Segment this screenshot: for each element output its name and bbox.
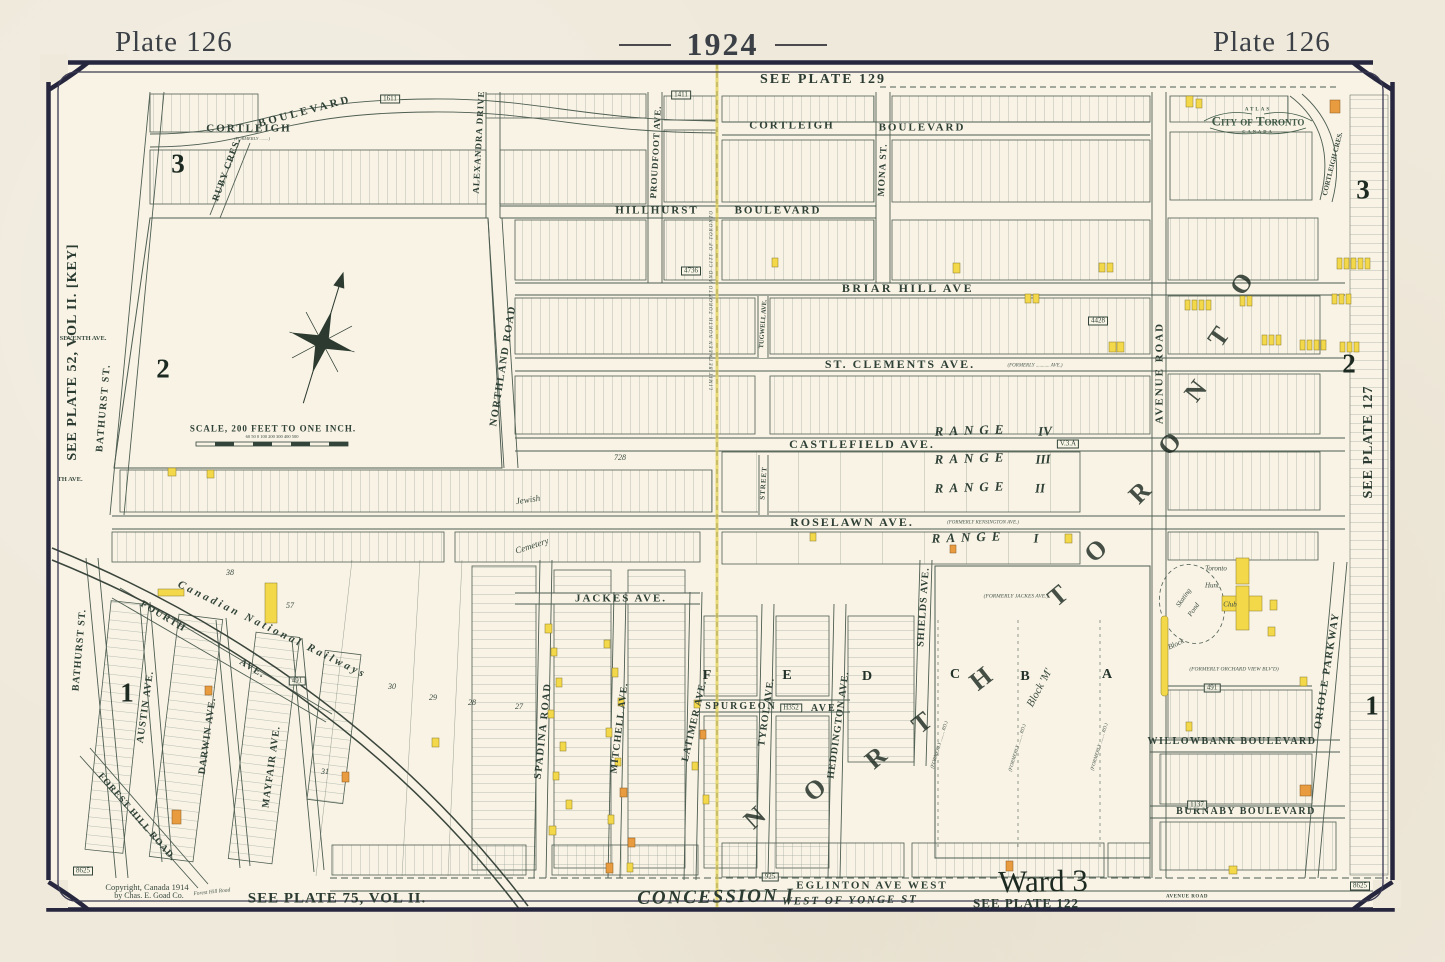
- year-title: 1924: [687, 26, 759, 63]
- plate-number-right: Plate 126: [1213, 26, 1331, 59]
- dash-left-icon: [619, 44, 671, 46]
- map-linework: [0, 0, 1445, 962]
- dash-right-icon: [775, 44, 827, 46]
- atlas-page: Plate 126 1924 Plate 126: [0, 0, 1445, 962]
